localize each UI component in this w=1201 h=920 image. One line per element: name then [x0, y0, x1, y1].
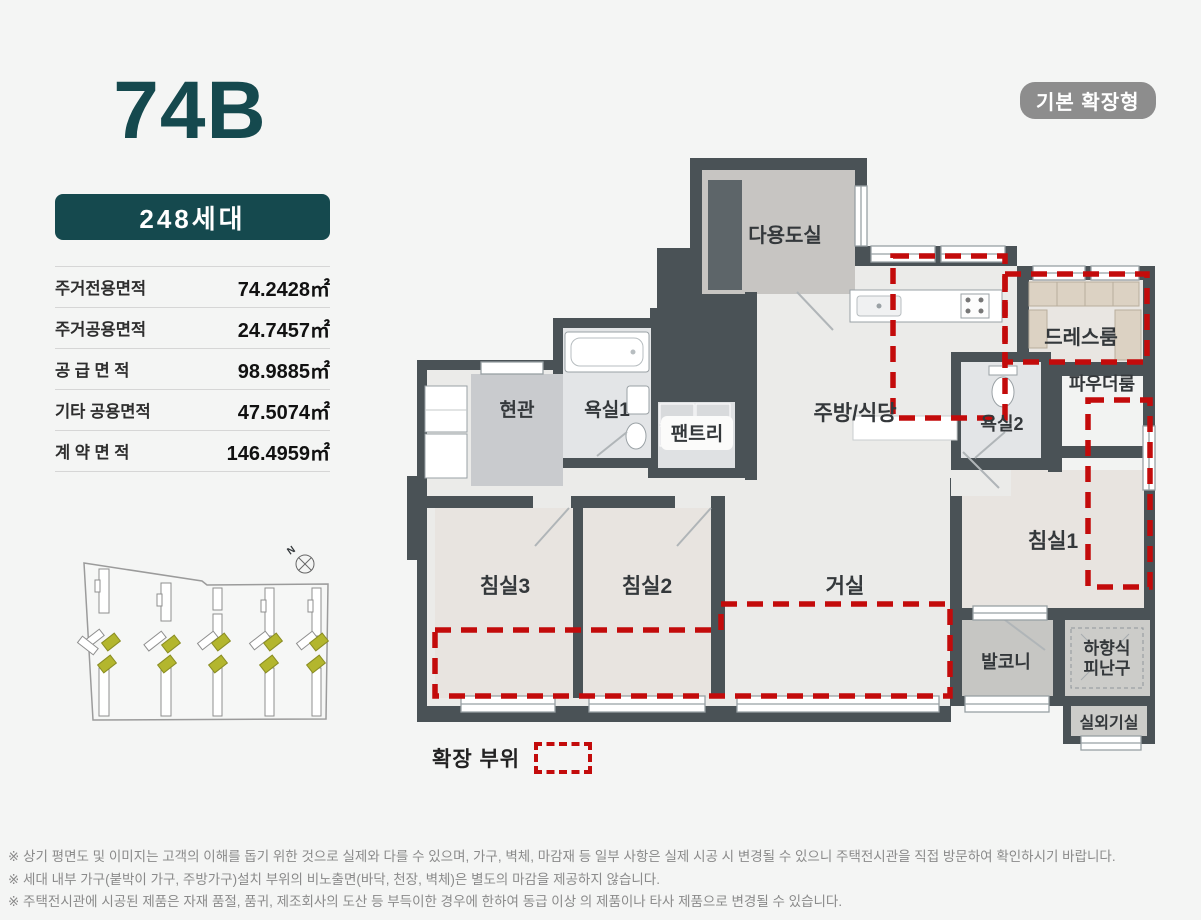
- room-label-living: 거실: [826, 575, 865, 598]
- expansion-legend-label: 확장 부위: [432, 743, 520, 773]
- expansion-legend: 확장 부위: [432, 742, 592, 774]
- footer-notes: ※ 상기 평면도 및 이미지는 고객의 이해를 돕기 위한 것으로 실제와 다를…: [8, 846, 1196, 914]
- room-label-outdoor-unit: 실외기실: [1080, 714, 1139, 732]
- room-label-powder: 파우더룸: [1069, 374, 1135, 394]
- room-label-escape-line2: 피난구: [1084, 659, 1131, 678]
- plan-type-badge: 기본 확장형: [1020, 82, 1156, 119]
- area-value: 146.4959㎡: [227, 437, 330, 466]
- area-label: 주거공용면적: [55, 316, 146, 340]
- room-label-bath2: 욕실2: [980, 414, 1023, 434]
- households-badge: 248세대: [55, 194, 330, 240]
- north-compass-icon: [296, 555, 314, 573]
- room-label-balcony: 발코니: [981, 652, 1031, 672]
- area-value: 74.2428㎡: [238, 273, 330, 302]
- area-value: 47.5074㎡: [238, 396, 330, 425]
- table-row: 주거공용면적 24.7457㎡: [55, 308, 330, 349]
- area-label: 기타 공용면적: [55, 398, 151, 422]
- table-row: 기타 공용면적 47.5074㎡: [55, 390, 330, 431]
- footer-note: ※ 상기 평면도 및 이미지는 고객의 이해를 돕기 위한 것으로 실제와 다를…: [8, 846, 1196, 868]
- area-label: 계 약 면 적: [55, 439, 129, 463]
- table-row: 공 급 면 적 98.9885㎡: [55, 349, 330, 390]
- unit-type-title: 74B: [40, 64, 340, 158]
- table-row: 주거전용면적 74.2428㎡: [55, 267, 330, 308]
- room-label-entrance: 현관: [500, 399, 535, 421]
- table-row: 계 약 면 적 146.4959㎡: [55, 431, 330, 472]
- room-label-pantry: 팬트리: [671, 423, 723, 445]
- room-label-bed2: 침실2: [622, 575, 672, 598]
- room-label-bed1: 침실1: [1028, 530, 1079, 553]
- floor-plan: 다용도실 현관 욕실1 팬트리 주방/식당 드레스룸 파우더룸 욕실2 침실1 …: [405, 140, 1165, 760]
- room-label-multipurpose: 다용도실: [748, 224, 822, 247]
- area-label: 주거전용면적: [55, 275, 146, 299]
- area-table: 주거전용면적 74.2428㎡ 주거공용면적 24.7457㎡ 공 급 면 적 …: [55, 266, 330, 472]
- area-value: 24.7457㎡: [238, 314, 330, 343]
- area-value: 98.9885㎡: [238, 355, 330, 384]
- room-label-escape-line1: 하향식: [1084, 638, 1131, 658]
- footer-note: ※ 주택전시관에 시공된 제품은 자재 품절, 품귀, 제조회사의 도산 등 부…: [8, 891, 1196, 913]
- expansion-legend-swatch: [534, 742, 592, 774]
- site-plan-map: N: [55, 536, 335, 736]
- room-label-dressroom: 드레스룸: [1044, 326, 1118, 349]
- north-label: N: [285, 544, 297, 557]
- room-label-bath1: 욕실1: [584, 399, 630, 421]
- area-label: 공 급 면 적: [55, 357, 129, 381]
- footer-note: ※ 세대 내부 가구(붙박이 가구, 주방가구)설치 부위의 비노출면(바닥, …: [8, 869, 1196, 891]
- room-label-kitchen: 주방/식당: [813, 402, 896, 425]
- room-label-bed3: 침실3: [480, 575, 530, 598]
